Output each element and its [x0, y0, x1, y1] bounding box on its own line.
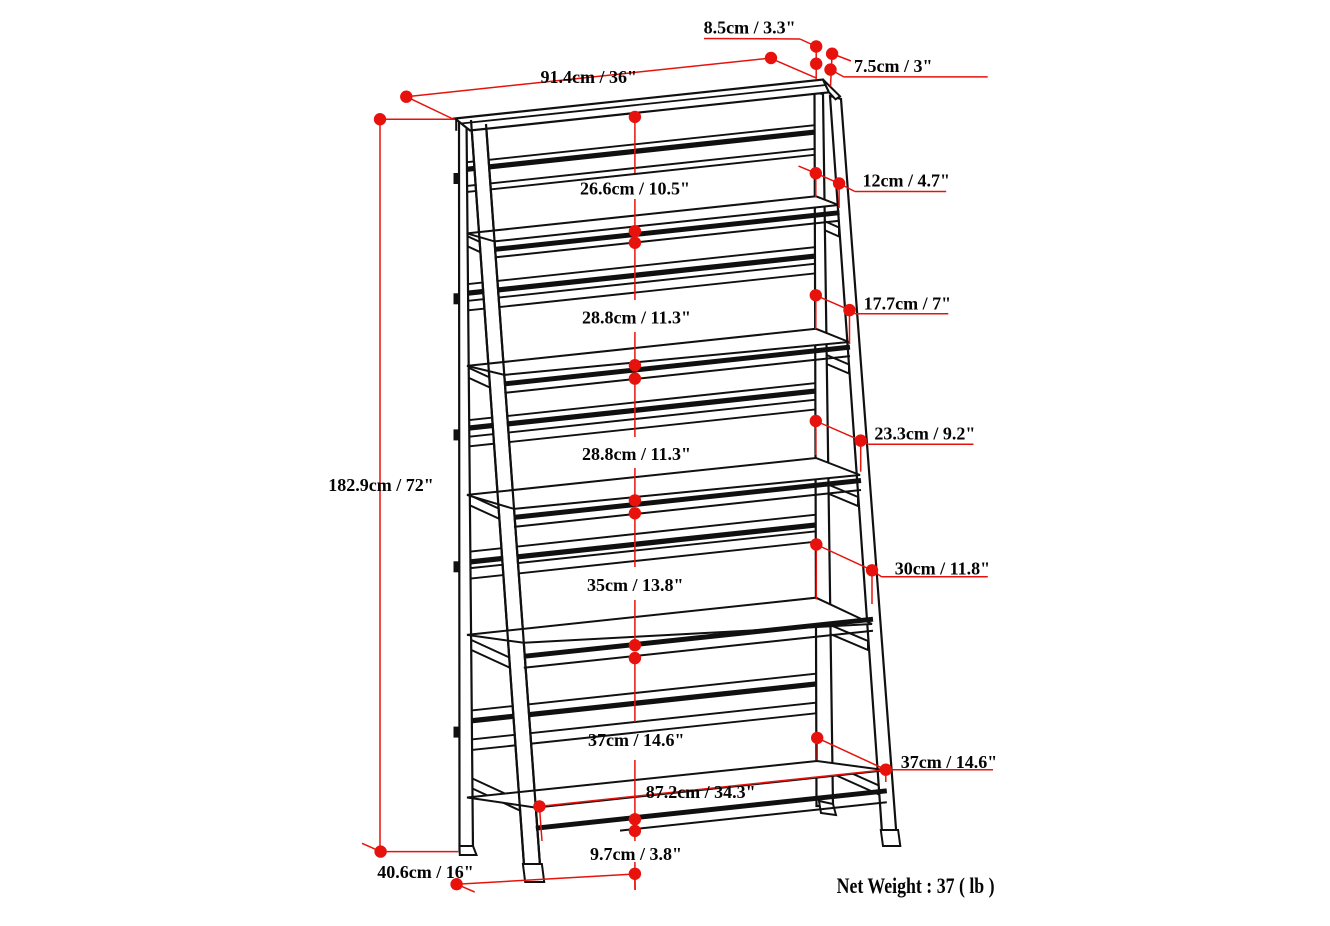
svg-text:87.2cm / 34.3": 87.2cm / 34.3"	[646, 782, 756, 802]
svg-text:17.7cm / 7": 17.7cm / 7"	[864, 293, 951, 313]
svg-text:9.7cm / 3.8": 9.7cm / 3.8"	[590, 844, 682, 864]
svg-text:182.9cm / 72": 182.9cm / 72"	[328, 475, 433, 495]
svg-text:37cm / 14.6": 37cm / 14.6"	[901, 752, 997, 772]
svg-text:Net Weight : 37 ( lb ): Net Weight : 37 ( lb )	[837, 873, 995, 898]
svg-text:35cm / 13.8": 35cm / 13.8"	[587, 575, 683, 595]
svg-text:7.5cm / 3": 7.5cm / 3"	[854, 56, 932, 76]
svg-text:40.6cm / 16": 40.6cm / 16"	[377, 862, 473, 882]
svg-text:28.8cm / 11.3": 28.8cm / 11.3"	[582, 308, 691, 328]
svg-text:30cm / 11.8": 30cm / 11.8"	[895, 558, 990, 578]
svg-text:26.6cm / 10.5": 26.6cm / 10.5"	[580, 179, 690, 199]
svg-text:28.8cm / 11.3": 28.8cm / 11.3"	[582, 444, 691, 464]
svg-text:37cm / 14.6": 37cm / 14.6"	[588, 730, 684, 750]
svg-text:8.5cm / 3.3": 8.5cm / 3.3"	[704, 18, 796, 38]
svg-text:23.3cm / 9.2": 23.3cm / 9.2"	[874, 423, 975, 443]
svg-text:91.4cm / 36": 91.4cm / 36"	[541, 67, 637, 87]
svg-text:12cm / 4.7": 12cm / 4.7"	[863, 171, 950, 191]
